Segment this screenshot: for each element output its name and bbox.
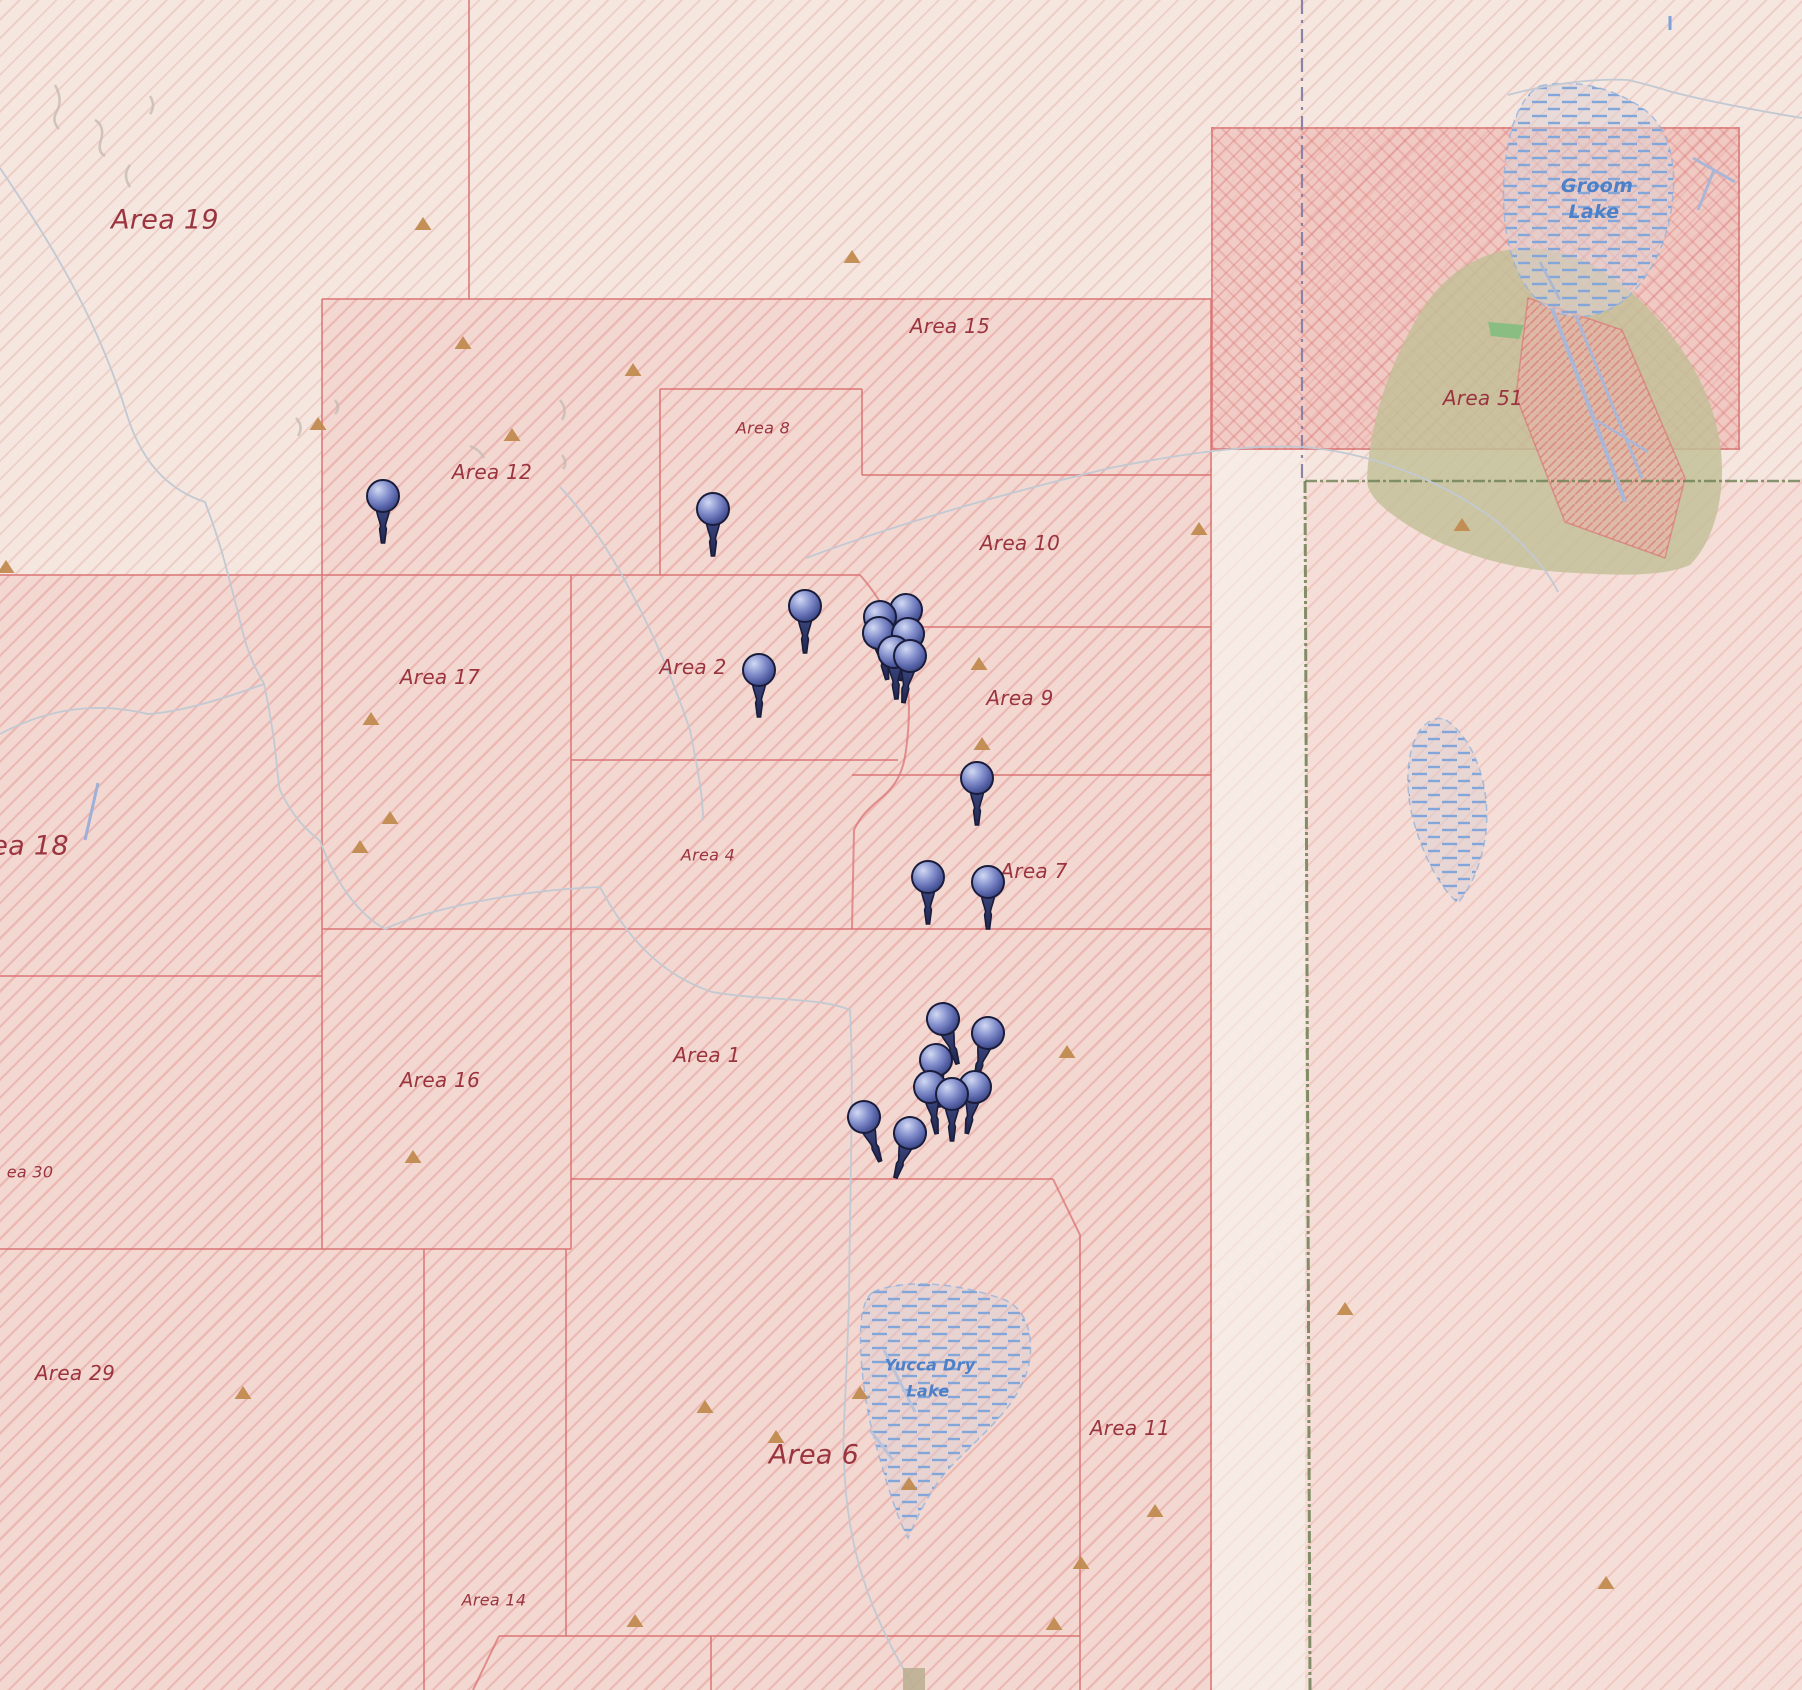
yucca-lake: [860, 1284, 1030, 1538]
map-pin-icon: [881, 634, 935, 711]
map-label-groom-lake-line2: Lake: [1569, 201, 1620, 223]
map-label-area-15: Area 15: [910, 314, 990, 338]
peak-icon: [1191, 522, 1208, 535]
runway-line: [1693, 158, 1735, 182]
yucca-lake-outline: [860, 1284, 1030, 1538]
map-pin-icon: [906, 858, 950, 930]
peak-icon: [352, 840, 369, 853]
groom-lake-outline: [1503, 83, 1673, 316]
map-pin-icon: [691, 490, 735, 562]
pond-lake-outline: [1408, 718, 1487, 903]
peak-icon: [627, 1614, 644, 1627]
map-pin-icon: [783, 587, 827, 659]
peak-icon: [405, 1150, 422, 1163]
map-pin-icon: [955, 759, 999, 831]
runway-line: [1698, 170, 1714, 210]
runway-line: [1576, 316, 1642, 478]
map-pin[interactable]: [361, 477, 405, 553]
terrain-mark: [150, 96, 153, 114]
peak-icon: [697, 1400, 714, 1413]
pond-lake: [1408, 718, 1487, 903]
east-range-area: [1305, 481, 1802, 1690]
road-line: [560, 487, 703, 820]
peak-icon: [901, 1477, 918, 1490]
terrain-mark: [296, 418, 301, 436]
map-label-area-1: Area 1: [673, 1043, 740, 1067]
map-pin[interactable]: [783, 587, 827, 663]
runway-line: [1540, 262, 1560, 300]
peak-icon: [310, 417, 327, 430]
map-label-area-19: Area 19: [111, 205, 219, 236]
map-canvas[interactable]: Area 19Area 15Area 8Area 12Area 51GroomL…: [0, 0, 1802, 1690]
terrain-mark: [470, 446, 484, 458]
map-pin-icon: [930, 1075, 974, 1147]
peak-icon: [1598, 1576, 1615, 1589]
vegetation-patch: [1488, 322, 1524, 339]
runway-restricted-area: [1516, 298, 1685, 558]
groom-lake-pattern: [1503, 83, 1673, 316]
map-label-area-2: Area 2: [659, 655, 726, 679]
region-border: [1053, 1179, 1080, 1690]
map-label-groom-lake-line1: Groom: [1561, 175, 1633, 197]
map-label-area-4: Area 4: [681, 846, 735, 865]
map-labels: Area 19Area 15Area 8Area 12Area 51GroomL…: [0, 0, 1802, 1690]
peak-icon: [974, 737, 991, 750]
area-51-restricted-box: [1211, 127, 1740, 450]
map-label-area-14: Area 14: [462, 1591, 527, 1610]
terrain-patch: [903, 1668, 925, 1690]
military-base-area: [1367, 248, 1722, 574]
terrain-mark: [335, 400, 338, 414]
map-label-area-18: ea 18: [0, 831, 69, 862]
runway-restricted-hatch: [1516, 298, 1685, 558]
peak-icon: [1147, 1504, 1164, 1517]
peak-icon: [455, 336, 472, 349]
map-label-area-17: Area 17: [400, 665, 480, 689]
map-label-yucca-lake-line1: Yucca Dry: [885, 1356, 976, 1375]
map-label-area-11: Area 11: [1090, 1416, 1170, 1440]
road-line: [0, 684, 264, 734]
peak-icon: [1337, 1302, 1354, 1315]
peak-icon: [1046, 1617, 1063, 1630]
road-line: [806, 446, 1558, 592]
peak-icon: [971, 657, 988, 670]
airstrip-mark: [884, 1350, 915, 1412]
map-pin-icon: [361, 477, 405, 549]
peak-icon: [382, 811, 399, 824]
peak-icon: [235, 1386, 252, 1399]
map-pins: [0, 0, 1802, 1690]
map-label-area-29: Area 29: [35, 1361, 115, 1385]
map-label-area-6: Area 6: [769, 1440, 859, 1471]
map-label-yucca-lake-line2: Lake: [906, 1382, 949, 1401]
map-pin[interactable]: [737, 651, 781, 727]
peak-icon: [625, 363, 642, 376]
map-label-area-16: Area 16: [400, 1068, 480, 1092]
peak-icon: [0, 560, 15, 573]
map-pin[interactable]: [906, 858, 950, 934]
map-geometry: [0, 0, 1802, 1690]
nts-restricted-area: [0, 0, 1802, 1690]
peak-icon: [363, 712, 380, 725]
terrain-mark: [95, 120, 105, 156]
terrain-mark: [562, 455, 565, 469]
terrain-mark: [560, 400, 565, 420]
peak-icon: [1059, 1045, 1076, 1058]
map-pin-icon: [966, 863, 1010, 935]
runway-line: [1552, 308, 1625, 502]
map-pin[interactable]: [880, 634, 934, 715]
map-pin[interactable]: [930, 1075, 974, 1151]
peak-icon: [852, 1386, 869, 1399]
peak-icon: [1073, 1556, 1090, 1569]
map-label-area-8: Area 8: [736, 419, 790, 438]
map-background: [0, 0, 1802, 1690]
road-line: [0, 168, 915, 1688]
map-pin-icon: [737, 651, 781, 723]
map-label-area-51: Area 51: [1443, 386, 1523, 410]
map-label-area-9: Area 9: [986, 686, 1053, 710]
peak-icon: [415, 217, 432, 230]
airstrip-mark: [870, 1430, 893, 1460]
map-label-area-10: Area 10: [980, 531, 1060, 555]
map-label-area-7: Area 7: [1000, 859, 1067, 883]
refuge-boundary-line: [1305, 481, 1310, 1690]
runway-line: [1596, 420, 1648, 452]
map-label-area-12: Area 12: [452, 460, 532, 484]
map-pin[interactable]: [966, 863, 1010, 939]
peak-icon: [844, 250, 861, 263]
stream-line: [85, 783, 98, 840]
peak-icon: [768, 1430, 785, 1443]
terrain-mark: [54, 85, 59, 129]
groom-lake: [1503, 83, 1673, 316]
peak-icon: [504, 428, 521, 441]
peak-icon: [1454, 518, 1471, 531]
map-pin[interactable]: [691, 490, 735, 566]
pond-lake-pattern: [1408, 718, 1487, 903]
boundary-corridor: [1212, 127, 1305, 1690]
map-label-area-30: ea 30: [7, 1163, 54, 1182]
region-border: [473, 1636, 499, 1690]
terrain-mark: [126, 165, 130, 187]
map-pin[interactable]: [955, 759, 999, 835]
yucca-lake-pattern: [860, 1284, 1030, 1538]
road-line: [1508, 80, 1802, 118]
